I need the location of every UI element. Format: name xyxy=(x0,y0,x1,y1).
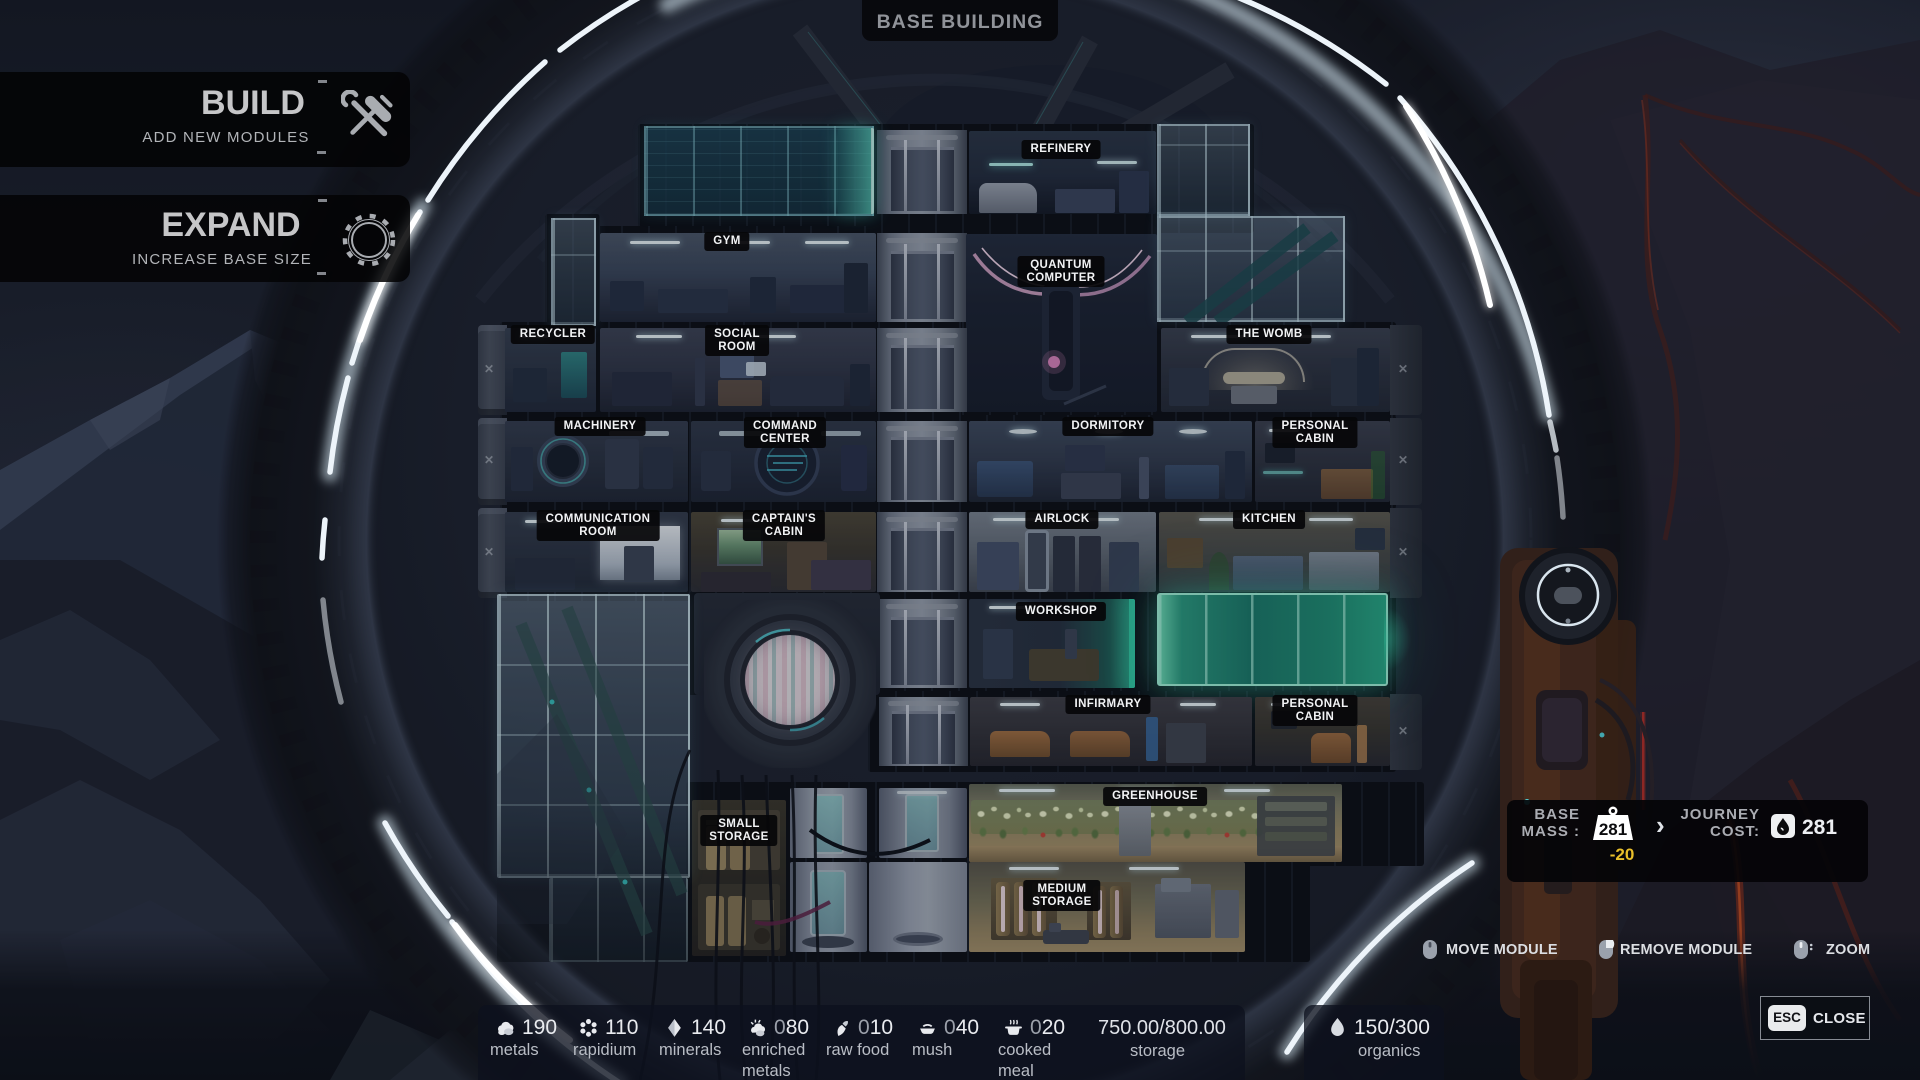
svg-text:281: 281 xyxy=(1599,820,1627,839)
